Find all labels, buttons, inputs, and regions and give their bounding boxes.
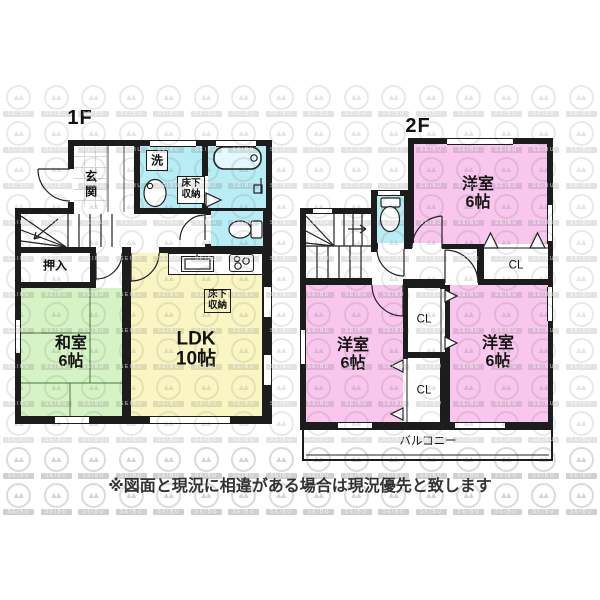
watermark-circle: ▲▲ [44, 447, 69, 472]
f2-bedroom-left-door-opening [372, 278, 403, 285]
f2-window-toilet [378, 190, 400, 196]
ldk-name-label: LDK [176, 330, 215, 351]
watermark-text-bar: SEIBU [528, 111, 559, 117]
watermark-circle: ▲▲ [269, 121, 294, 146]
watermark-circle: ▲▲ [569, 121, 594, 146]
watermark-circle: ▲▲ [6, 85, 31, 110]
watermark-text-bar: SEIBU [566, 401, 597, 407]
f1-stairs-area [21, 214, 125, 247]
watermark-mountain-glyph: ▲▲ [12, 491, 26, 500]
watermark-text-bar: SEIBU [566, 292, 597, 298]
bedroom-left-size-label: 6帖 [341, 355, 366, 373]
watermark-logo-icon: ▲▲SEIBU [338, 156, 376, 192]
watermark-circle: ▲▲ [44, 157, 69, 182]
watermark-circle: ▲▲ [306, 85, 331, 110]
watermark-mountain-glyph: ▲▲ [237, 129, 251, 138]
watermark-text-bar: SEIBU [341, 147, 372, 153]
f1-window-washroom-top [150, 140, 196, 147]
watermark-text-bar: SEIBU [78, 437, 109, 443]
f2-window-bedroom-left-side [300, 330, 306, 364]
watermark-mountain-glyph: ▲▲ [462, 93, 476, 102]
watermark-circle: ▲▲ [119, 85, 144, 110]
watermark-text-bar: SEIBU [153, 509, 184, 515]
watermark-text-bar: SEIBU [3, 183, 34, 189]
watermark-text-bar: SEIBU [3, 437, 34, 443]
watermark-text-bar: SEIBU [303, 183, 334, 189]
watermark-text-bar: SEIBU [266, 111, 297, 117]
watermark-circle: ▲▲ [269, 338, 294, 363]
watermark-mountain-glyph: ▲▲ [49, 93, 63, 102]
watermark-text-bar: SEIBU [453, 111, 484, 117]
watermark-text-bar: SEIBU [528, 473, 559, 479]
watermark-text-bar: SEIBU [228, 111, 259, 117]
watermark-logo-icon: ▲▲SEIBU [225, 446, 263, 482]
watermark-logo-icon: ▲▲SEIBU [563, 482, 600, 518]
watermark-mountain-glyph: ▲▲ [274, 238, 288, 247]
watermark-mountain-glyph: ▲▲ [574, 238, 588, 247]
watermark-logo-icon: ▲▲SEIBU [563, 193, 600, 229]
watermark-text-bar: SEIBU [153, 437, 184, 443]
watermark-text-bar: SEIBU [228, 509, 259, 515]
watermark-circle: ▲▲ [269, 411, 294, 436]
watermark-logo-icon: ▲▲SEIBU [113, 446, 151, 482]
watermark-text-bar: SEIBU [378, 183, 409, 189]
underfloor-storage-label: 床下 収納 [181, 179, 200, 201]
watermark-circle: ▲▲ [6, 483, 31, 508]
watermark-mountain-glyph: ▲▲ [124, 455, 138, 464]
watermark-mountain-glyph: ▲▲ [574, 455, 588, 464]
watermark-logo-icon: ▲▲SEIBU [563, 84, 600, 120]
f1-kitchen-sink [181, 256, 214, 272]
watermark-mountain-glyph: ▲▲ [387, 129, 401, 138]
watermark-circle: ▲▲ [569, 302, 594, 327]
floor2-label: 2F [405, 115, 430, 137]
watermark-mountain-glyph: ▲▲ [349, 129, 363, 138]
watermark-text-bar: SEIBU [453, 509, 484, 515]
watermark-mountain-glyph: ▲▲ [574, 274, 588, 283]
watermark-circle: ▲▲ [381, 157, 406, 182]
watermark-circle: ▲▲ [306, 157, 331, 182]
watermark-mountain-glyph: ▲▲ [574, 346, 588, 355]
watermark-logo-icon: ▲▲SEIBU [563, 446, 600, 482]
watermark-mountain-glyph: ▲▲ [349, 93, 363, 102]
genkan-label: 玄関 [83, 170, 96, 200]
bedroom-right-name-label: 洋室 [482, 335, 514, 353]
watermark-circle: ▲▲ [231, 85, 256, 110]
watermark-circle: ▲▲ [569, 266, 594, 291]
f2-toilet-room [377, 196, 404, 243]
watermark-circle: ▲▲ [531, 483, 556, 508]
watermark-circle: ▲▲ [44, 121, 69, 146]
watermark-mountain-glyph: ▲▲ [12, 129, 26, 138]
watermark-mountain-glyph: ▲▲ [274, 346, 288, 355]
watermark-logo-icon: ▲▲SEIBU [300, 156, 338, 192]
watermark-circle: ▲▲ [6, 157, 31, 182]
watermark-mountain-glyph: ▲▲ [274, 310, 288, 319]
watermark-text-bar: SEIBU [566, 437, 597, 443]
watermark-circle: ▲▲ [569, 157, 594, 182]
watermark-text-bar: SEIBU [303, 147, 334, 153]
watermark-logo-icon: ▲▲SEIBU [563, 410, 600, 446]
watermark-circle: ▲▲ [494, 85, 519, 110]
watermark-logo-icon: ▲▲SEIBU [0, 84, 38, 120]
watermark-text-bar: SEIBU [266, 509, 297, 515]
watermark-circle: ▲▲ [569, 194, 594, 219]
floorplan-image: 1F 2F 玄関 洗 床下 収納 押入 和室 6帖 LDK 10帖 床下 収納 … [0, 0, 600, 600]
watermark-circle: ▲▲ [569, 230, 594, 255]
watermark-mountain-glyph: ▲▲ [387, 165, 401, 174]
watermark-mountain-glyph: ▲▲ [274, 202, 288, 211]
watermark-text-bar: SEIBU [341, 111, 372, 117]
f2-bedroom-top-door-opening [412, 243, 442, 250]
watermark-logo-icon: ▲▲SEIBU [563, 374, 600, 410]
watermark-mountain-glyph: ▲▲ [124, 93, 138, 102]
watermark-text-bar: SEIBU [566, 364, 597, 370]
watermark-text-bar: SEIBU [41, 473, 72, 479]
watermark-logo-icon: ▲▲SEIBU [563, 156, 600, 192]
watermark-logo-icon: ▲▲SEIBU [75, 446, 113, 482]
watermark-mountain-glyph: ▲▲ [349, 165, 363, 174]
watermark-logo-icon: ▲▲SEIBU [38, 482, 76, 518]
watermark-mountain-glyph: ▲▲ [87, 491, 101, 500]
watermark-text-bar: SEIBU [303, 509, 334, 515]
watermark-circle: ▲▲ [6, 447, 31, 472]
watermark-mountain-glyph: ▲▲ [574, 202, 588, 211]
underfloor-storage-line2: 収納 [181, 190, 200, 201]
bedroom-right-size-label: 6帖 [486, 353, 511, 371]
watermark-circle: ▲▲ [81, 447, 106, 472]
watermark-text-bar: SEIBU [116, 437, 147, 443]
f1-genkan-hall-opening [74, 207, 134, 214]
watermark-logo-icon: ▲▲SEIBU [488, 84, 526, 120]
watermark-text-bar: SEIBU [566, 256, 597, 262]
bedroom-top-name-label: 洋室 [462, 176, 494, 194]
watermark-circle: ▲▲ [6, 121, 31, 146]
watermark-mountain-glyph: ▲▲ [124, 129, 138, 138]
watermark-circle: ▲▲ [269, 266, 294, 291]
f2-window-bedroom-top [447, 138, 513, 145]
f1-corridor [96, 253, 122, 288]
watermark-mountain-glyph: ▲▲ [199, 129, 213, 138]
watermark-text-bar: SEIBU [3, 509, 34, 515]
watermark-text-bar: SEIBU [78, 509, 109, 515]
watermark-circle: ▲▲ [494, 483, 519, 508]
watermark-logo-icon: ▲▲SEIBU [375, 156, 413, 192]
bedroom-top-size-label: 6帖 [466, 194, 491, 212]
watermark-mountain-glyph: ▲▲ [12, 165, 26, 174]
watermark-logo-icon: ▲▲SEIBU [300, 84, 338, 120]
watermark-text-bar: SEIBU [191, 437, 222, 443]
f2-hallway [377, 249, 477, 279]
f1-entrance-door-arc [38, 169, 70, 201]
watermark-circle: ▲▲ [269, 157, 294, 182]
watermark-mountain-glyph: ▲▲ [274, 419, 288, 428]
watermark-mountain-glyph: ▲▲ [87, 93, 101, 102]
watermark-mountain-glyph: ▲▲ [499, 491, 513, 500]
watermark-circle: ▲▲ [381, 85, 406, 110]
watermark-text-bar: SEIBU [528, 509, 559, 515]
ldk-underfloor-line2: 収納 [208, 301, 227, 312]
watermark-text-bar: SEIBU [266, 437, 297, 443]
watermark-logo-icon: ▲▲SEIBU [338, 120, 376, 156]
watermark-mountain-glyph: ▲▲ [462, 129, 476, 138]
watermark-logo-icon: ▲▲SEIBU [150, 84, 188, 120]
watermark-circle: ▲▲ [269, 230, 294, 255]
watermark-logo-icon: ▲▲SEIBU [450, 84, 488, 120]
f1-window-bath-top [216, 140, 256, 147]
watermark-logo-icon: ▲▲SEIBU [0, 156, 38, 192]
watermark-circle: ▲▲ [456, 85, 481, 110]
watermark-logo-icon: ▲▲SEIBU [563, 265, 600, 301]
watermark-text-bar: SEIBU [491, 473, 522, 479]
watermark-text-bar: SEIBU [228, 437, 259, 443]
f1-stove [229, 254, 254, 272]
watermark-circle: ▲▲ [269, 302, 294, 327]
watermark-circle: ▲▲ [269, 447, 294, 472]
watermark-mountain-glyph: ▲▲ [274, 93, 288, 102]
watermark-mountain-glyph: ▲▲ [574, 310, 588, 319]
watermark-logo-icon: ▲▲SEIBU [188, 84, 226, 120]
watermark-circle: ▲▲ [306, 121, 331, 146]
watermark-text-bar: SEIBU [341, 183, 372, 189]
watermark-mountain-glyph: ▲▲ [312, 93, 326, 102]
watermark-mountain-glyph: ▲▲ [574, 165, 588, 174]
f2-closet-bottom-door-opening [403, 359, 408, 422]
watermark-mountain-glyph: ▲▲ [49, 491, 63, 500]
watermark-text-bar: SEIBU [3, 111, 34, 117]
watermark-mountain-glyph: ▲▲ [499, 129, 513, 138]
watermark-logo-icon: ▲▲SEIBU [563, 337, 600, 373]
watermark-mountain-glyph: ▲▲ [199, 93, 213, 102]
watermark-text-bar: SEIBU [41, 509, 72, 515]
watermark-circle: ▲▲ [419, 85, 444, 110]
bedroom-left-name-label: 洋室 [337, 337, 369, 355]
watermark-mountain-glyph: ▲▲ [49, 129, 63, 138]
watermark-logo-icon: ▲▲SEIBU [113, 84, 151, 120]
watermark-mountain-glyph: ▲▲ [424, 93, 438, 102]
watermark-logo-icon: ▲▲SEIBU [225, 84, 263, 120]
ldk-size-label: 10帖 [176, 350, 216, 371]
watermark-logo-icon: ▲▲SEIBU [150, 446, 188, 482]
watermark-mountain-glyph: ▲▲ [574, 129, 588, 138]
watermark-mountain-glyph: ▲▲ [87, 129, 101, 138]
watermark-mountain-glyph: ▲▲ [274, 274, 288, 283]
watermark-mountain-glyph: ▲▲ [387, 93, 401, 102]
watermark-text-bar: SEIBU [566, 509, 597, 515]
watermark-mountain-glyph: ▲▲ [12, 455, 26, 464]
balcony-label: バルコニー [399, 436, 456, 449]
watermark-mountain-glyph: ▲▲ [12, 93, 26, 102]
watermark-text-bar: SEIBU [78, 473, 109, 479]
watermark-mountain-glyph: ▲▲ [274, 455, 288, 464]
closet-mid-label: CL [417, 314, 432, 327]
watermark-text-bar: SEIBU [191, 509, 222, 515]
watermark-circle: ▲▲ [44, 85, 69, 110]
watermark-circle: ▲▲ [269, 85, 294, 110]
watermark-circle: ▲▲ [381, 121, 406, 146]
watermark-logo-icon: ▲▲SEIBU [75, 482, 113, 518]
f2-bedroom-right-door-opening [445, 278, 478, 285]
watermark-text-bar: SEIBU [191, 111, 222, 117]
watermark-mountain-glyph: ▲▲ [499, 93, 513, 102]
washitsu-name-label: 和室 [55, 335, 87, 353]
watermark-text-bar: SEIBU [491, 111, 522, 117]
washer-label: 洗 [151, 154, 163, 167]
f1-window-washitsu-left [15, 320, 21, 353]
closet-bottom-label: CL [417, 385, 432, 398]
watermark-text-bar: SEIBU [41, 437, 72, 443]
watermark-logo-icon: ▲▲SEIBU [0, 482, 38, 518]
f2-toilet-door-opening [378, 243, 404, 250]
watermark-text-bar: SEIBU [341, 509, 372, 515]
watermark-mountain-glyph: ▲▲ [274, 129, 288, 138]
watermark-circle: ▲▲ [194, 447, 219, 472]
watermark-text-bar: SEIBU [116, 111, 147, 117]
watermark-mountain-glyph: ▲▲ [49, 455, 63, 464]
watermark-text-bar: SEIBU [378, 147, 409, 153]
f2-closet-top-door-opening [484, 244, 548, 249]
watermark-mountain-glyph: ▲▲ [237, 93, 251, 102]
closet-top-label: CL [509, 260, 524, 273]
f1-ldk-door-opening [131, 247, 159, 253]
watermark-circle: ▲▲ [569, 338, 594, 363]
f1-bathroom [208, 146, 266, 208]
watermark-mountain-glyph: ▲▲ [49, 165, 63, 174]
watermark-text-bar: SEIBU [116, 509, 147, 515]
watermark-logo-icon: ▲▲SEIBU [0, 120, 38, 156]
watermark-mountain-glyph: ▲▲ [199, 455, 213, 464]
watermark-circle: ▲▲ [231, 447, 256, 472]
f1-window-washitsu-bottom [55, 416, 89, 424]
watermark-circle: ▲▲ [81, 483, 106, 508]
watermark-circle: ▲▲ [344, 85, 369, 110]
f2-stairs-hall-opening [371, 252, 377, 278]
watermark-logo-icon: ▲▲SEIBU [300, 120, 338, 156]
watermark-text-bar: SEIBU [566, 147, 597, 153]
watermark-logo-icon: ▲▲SEIBU [525, 84, 563, 120]
watermark-logo-icon: ▲▲SEIBU [563, 120, 600, 156]
watermark-circle: ▲▲ [569, 85, 594, 110]
watermark-text-bar: SEIBU [566, 183, 597, 189]
watermark-mountain-glyph: ▲▲ [87, 455, 101, 464]
f1-entrance-opening [68, 169, 74, 202]
watermark-circle: ▲▲ [156, 85, 181, 110]
f2-window-stairs [313, 208, 332, 214]
watermark-mountain-glyph: ▲▲ [537, 129, 551, 138]
watermark-logo-icon: ▲▲SEIBU [0, 446, 38, 482]
f1-toilet-door-opening [205, 215, 211, 244]
oshiire-label: 押入 [43, 259, 67, 272]
watermark-text-bar: SEIBU [416, 509, 447, 515]
f1-toilet-room [211, 211, 263, 246]
watermark-circle: ▲▲ [269, 194, 294, 219]
watermark-circle: ▲▲ [194, 85, 219, 110]
washitsu-size-label: 6帖 [59, 353, 84, 371]
disclaimer-text: ※図面と現況に相違がある場合は現況優先と致します [108, 478, 492, 496]
f2-window-bedroom-top-right [547, 205, 553, 241]
watermark-text-bar: SEIBU [566, 328, 597, 334]
watermark-mountain-glyph: ▲▲ [162, 93, 176, 102]
watermark-mountain-glyph: ▲▲ [162, 129, 176, 138]
watermark-circle: ▲▲ [531, 85, 556, 110]
watermark-text-bar: SEIBU [491, 509, 522, 515]
watermark-mountain-glyph: ▲▲ [574, 93, 588, 102]
watermark-text-bar: SEIBU [303, 111, 334, 117]
watermark-circle: ▲▲ [569, 375, 594, 400]
watermark-circle: ▲▲ [569, 447, 594, 472]
watermark-mountain-glyph: ▲▲ [537, 93, 551, 102]
watermark-circle: ▲▲ [269, 375, 294, 400]
watermark-mountain-glyph: ▲▲ [274, 383, 288, 392]
watermark-mountain-glyph: ▲▲ [312, 165, 326, 174]
f2-closet-mid-door-opening [440, 289, 445, 352]
watermark-mountain-glyph: ▲▲ [162, 455, 176, 464]
watermark-text-bar: SEIBU [3, 473, 34, 479]
watermark-text-bar: SEIBU [3, 147, 34, 153]
watermark-circle: ▲▲ [569, 411, 594, 436]
watermark-logo-icon: ▲▲SEIBU [338, 84, 376, 120]
watermark-text-bar: SEIBU [153, 111, 184, 117]
watermark-logo-icon: ▲▲SEIBU [38, 446, 76, 482]
watermark-logo-icon: ▲▲SEIBU [263, 84, 301, 120]
watermark-mountain-glyph: ▲▲ [237, 455, 251, 464]
watermark-circle: ▲▲ [344, 121, 369, 146]
watermark-text-bar: SEIBU [566, 473, 597, 479]
watermark-circle: ▲▲ [119, 447, 144, 472]
f2-window-bedroom-right-side [547, 287, 553, 321]
floor1-label: 1F [67, 107, 92, 129]
watermark-circle: ▲▲ [344, 157, 369, 182]
f1-corridor-door-opening [96, 247, 122, 253]
watermark-mountain-glyph: ▲▲ [312, 129, 326, 138]
f1-window-ldk-bottom [150, 416, 230, 424]
watermark-logo-icon: ▲▲SEIBU [525, 482, 563, 518]
watermark-circle: ▲▲ [569, 483, 594, 508]
watermark-circle: ▲▲ [156, 447, 181, 472]
ldk-underfloor-label: 床下 収納 [208, 290, 227, 312]
watermark-logo-icon: ▲▲SEIBU [563, 229, 600, 265]
watermark-mountain-glyph: ▲▲ [537, 491, 551, 500]
watermark-text-bar: SEIBU [378, 509, 409, 515]
watermark-logo-icon: ▲▲SEIBU [188, 446, 226, 482]
watermark-circle: ▲▲ [44, 483, 69, 508]
f1-window-ldk-right-1 [263, 287, 272, 317]
watermark-mountain-glyph: ▲▲ [274, 165, 288, 174]
watermark-logo-icon: ▲▲SEIBU [488, 482, 526, 518]
f1-window-ldk-right-2 [263, 355, 272, 385]
watermark-logo-icon: ▲▲SEIBU [563, 301, 600, 337]
watermark-text-bar: SEIBU [566, 220, 597, 226]
watermark-logo-icon: ▲▲SEIBU [263, 446, 301, 482]
watermark-mountain-glyph: ▲▲ [574, 419, 588, 428]
f2-stairs-area [306, 214, 371, 278]
watermark-text-bar: SEIBU [566, 111, 597, 117]
watermark-mountain-glyph: ▲▲ [574, 491, 588, 500]
watermark-mountain-glyph: ▲▲ [574, 383, 588, 392]
